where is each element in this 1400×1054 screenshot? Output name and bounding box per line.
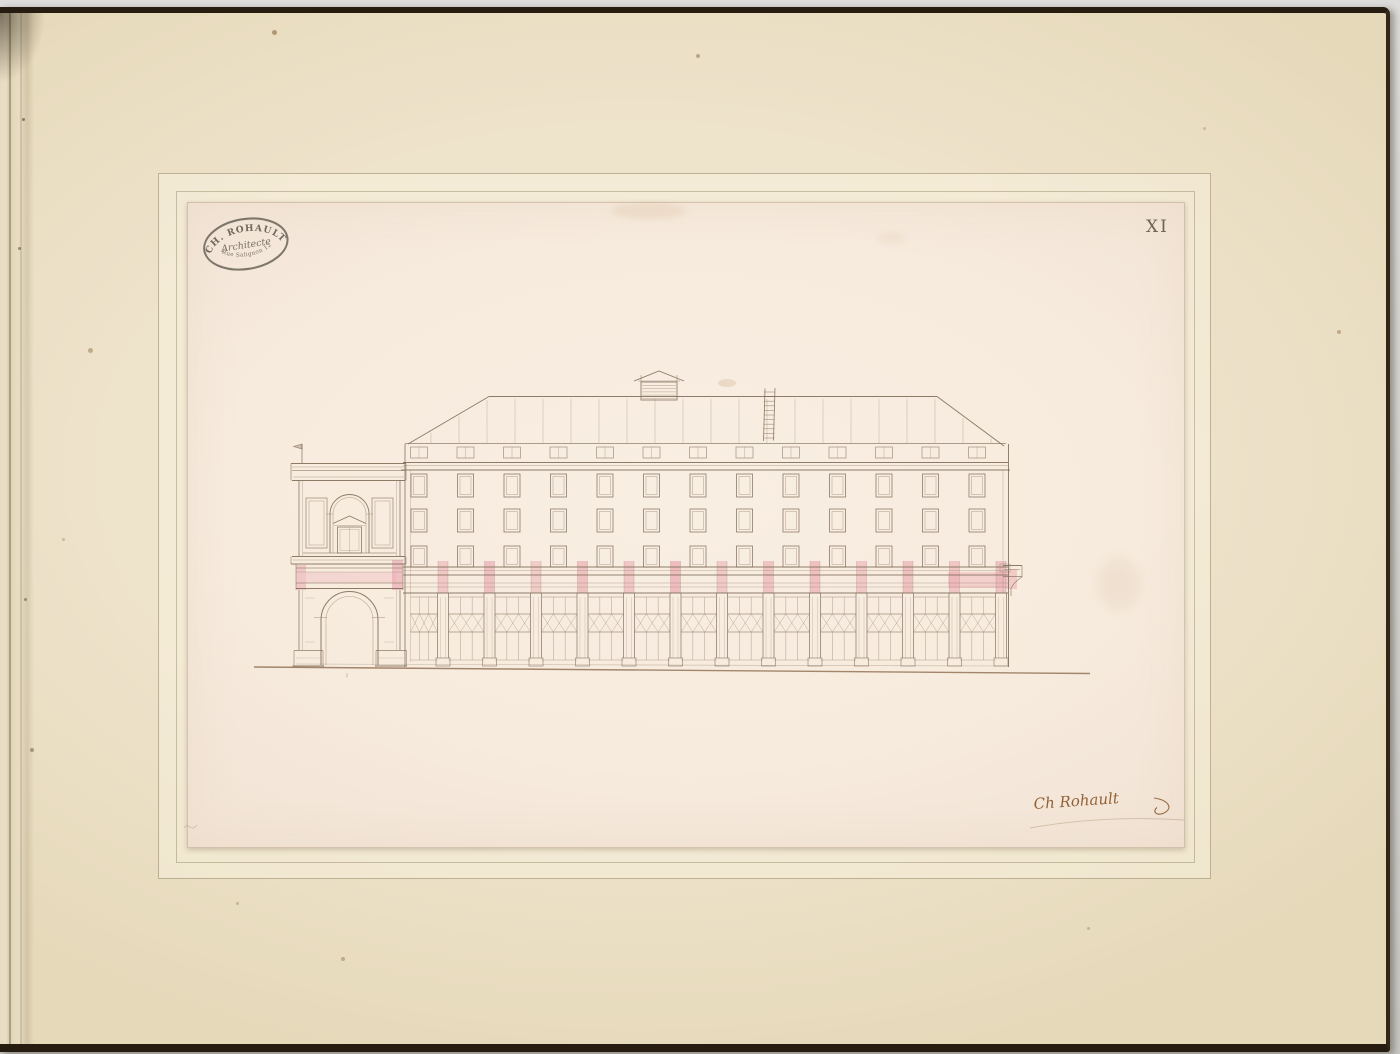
foxing-spot: [88, 348, 93, 353]
scanned-album-photograph: CH. ROHAULT Architecte Rue Salignon 12 X…: [0, 0, 1400, 1054]
foxing-spot: [236, 902, 239, 905]
spine-crease-line: [9, 13, 11, 1044]
signature-flourish: [1154, 798, 1169, 814]
paper-stain: [878, 232, 904, 244]
signature-text: Ch Rohault: [1033, 789, 1120, 813]
drawing-sheet: [187, 202, 1185, 848]
paper-stain: [1098, 558, 1140, 610]
binding-speck: [22, 118, 25, 121]
foxing-spot: [30, 748, 34, 752]
pencil-arc: [1030, 819, 1184, 828]
foxing-spot: [62, 538, 65, 541]
spine-crease-line: [20, 13, 22, 1044]
book-spine-edge: [0, 13, 34, 1044]
foxing-spot: [272, 30, 277, 35]
foxing-spot: [1203, 127, 1206, 130]
binding-speck: [24, 598, 27, 601]
foxing-spot: [341, 957, 345, 961]
plate-number-label: XI: [1146, 217, 1194, 237]
binding-speck: [18, 247, 21, 250]
architect-signature: Ch Rohault: [1026, 778, 1194, 834]
foxing-spot: [1087, 927, 1090, 930]
foxing-spot: [696, 54, 700, 58]
paper-stain: [612, 203, 686, 219]
spine-corner-shadow: [0, 13, 46, 83]
foxing-spot: [1337, 330, 1341, 334]
